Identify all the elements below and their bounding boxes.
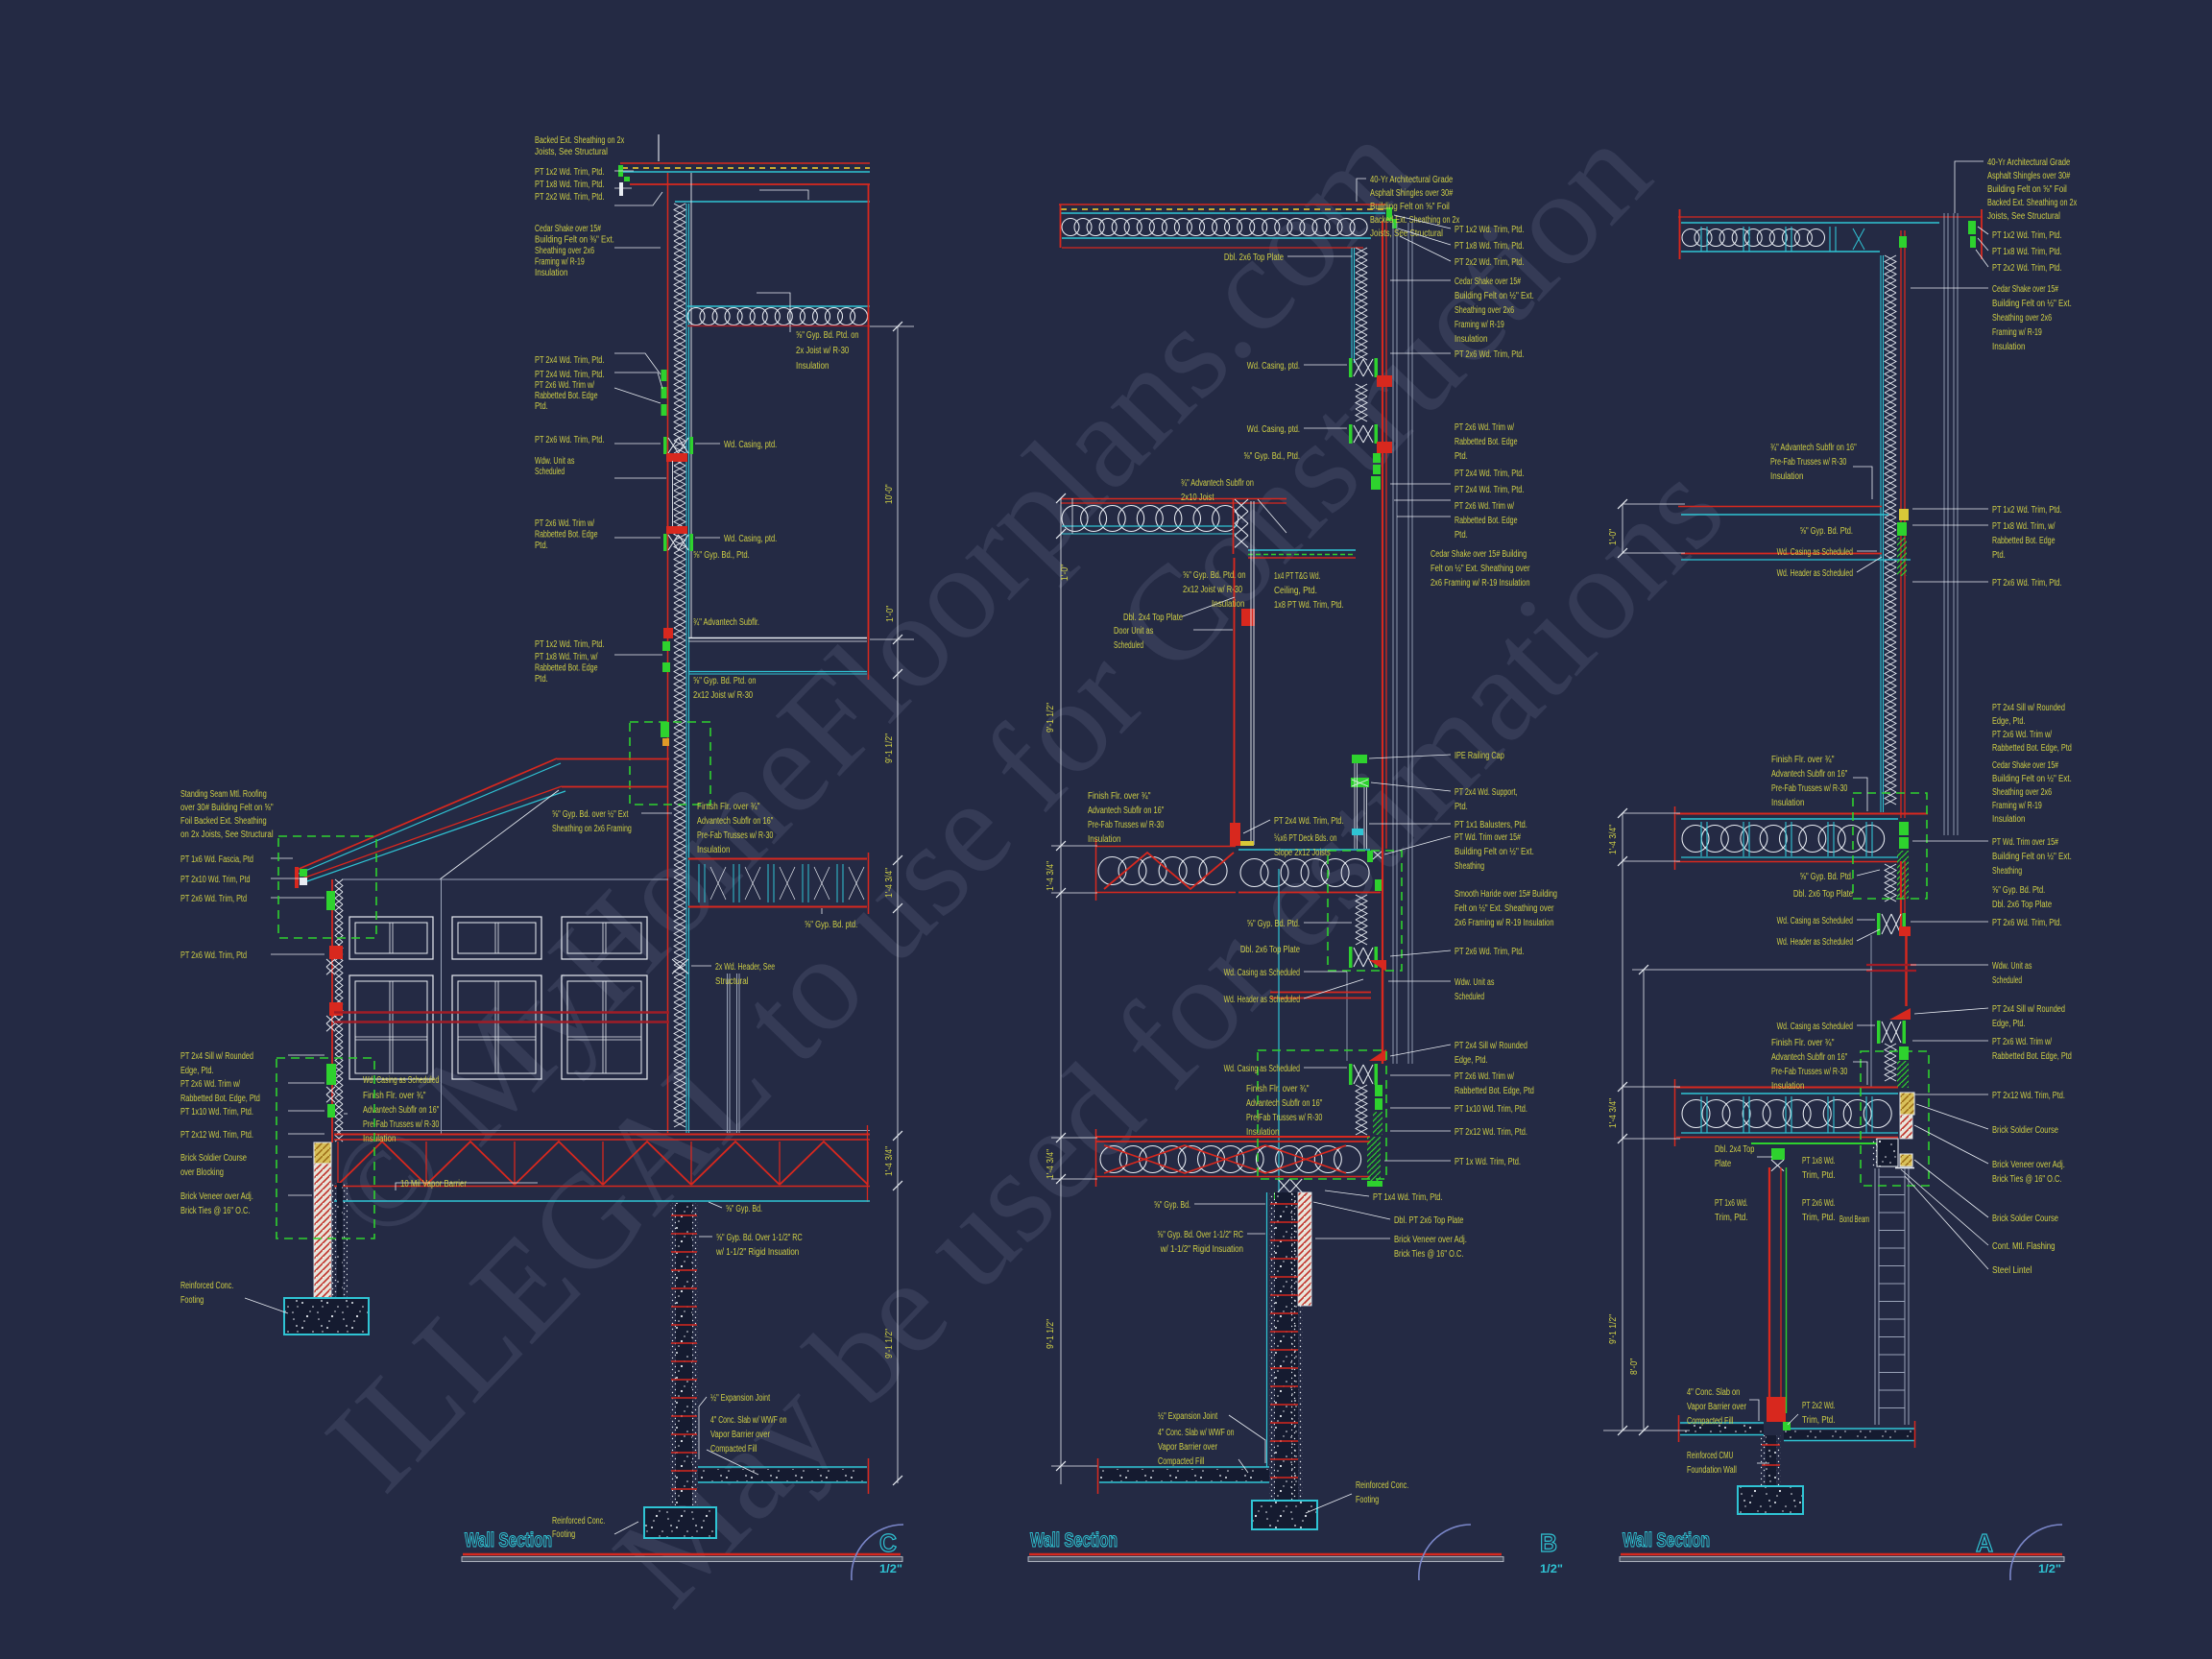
svg-text:Asphalt Shingles over 30#: Asphalt Shingles over 30# xyxy=(1370,188,1454,199)
svg-text:Advantech Subflr on 16": Advantech Subflr on 16" xyxy=(1771,1052,1848,1063)
svg-text:PT 1x2 Wd. Trim, Ptd.: PT 1x2 Wd. Trim, Ptd. xyxy=(535,639,605,650)
svg-text:Wd. Header as Scheduled: Wd. Header as Scheduled xyxy=(1777,937,1853,948)
svg-text:Brick Soldier Course: Brick Soldier Course xyxy=(1992,1125,2058,1136)
svg-text:PT 1x10 Wd. Trim, Ptd.: PT 1x10 Wd. Trim, Ptd. xyxy=(180,1107,253,1118)
svg-text:PT 2x6 Wd.: PT 2x6 Wd. xyxy=(1802,1198,1836,1209)
svg-text:Compacted Fill: Compacted Fill xyxy=(1687,1416,1733,1427)
svg-text:PT 1x1 Balusters, Ptd.: PT 1x1 Balusters, Ptd. xyxy=(1455,820,1527,830)
svg-text:1'-4 3/4": 1'-4 3/4" xyxy=(1046,861,1056,891)
svg-text:Sheathing over 2x6: Sheathing over 2x6 xyxy=(1455,305,1514,316)
svg-text:Bond Beam: Bond Beam xyxy=(1839,1214,1869,1225)
svg-text:2x6 Framing w/ R-19 Insulation: 2x6 Framing w/ R-19 Insulation xyxy=(1455,918,1554,928)
svg-text:PT 2x4 Wd. Trim, Ptd.: PT 2x4 Wd. Trim, Ptd. xyxy=(1455,469,1525,479)
svg-text:Felt on ½" Ext. Sheathing over: Felt on ½" Ext. Sheathing over xyxy=(1455,903,1554,914)
svg-text:10'-0": 10'-0" xyxy=(884,484,895,504)
svg-text:Framing w/ R-19: Framing w/ R-19 xyxy=(535,257,585,268)
svg-text:Wd. Casing as Scheduled: Wd. Casing as Scheduled xyxy=(1224,1064,1300,1074)
svg-text:Framing w/ R-19: Framing w/ R-19 xyxy=(1992,327,2042,338)
svg-text:Rabbetted Bot. Edge, Ptd: Rabbetted Bot. Edge, Ptd xyxy=(180,1094,260,1104)
svg-text:9'-1 1/2": 9'-1 1/2" xyxy=(1046,1319,1056,1349)
svg-text:1'-4 3/4": 1'-4 3/4" xyxy=(1046,1149,1056,1179)
svg-text:⅝" Gyp. Bd., Ptd.: ⅝" Gyp. Bd., Ptd. xyxy=(1243,451,1300,462)
svg-text:Sheathing over 2x6: Sheathing over 2x6 xyxy=(1992,313,2052,324)
svg-text:Vapor Barrier over: Vapor Barrier over xyxy=(710,1430,771,1440)
svg-text:w/ 1-1/2" Rigid Insuation: w/ 1-1/2" Rigid Insuation xyxy=(1160,1244,1243,1255)
svg-text:Foundation Wall: Foundation Wall xyxy=(1687,1465,1737,1476)
svg-text:Edge, Ptd.: Edge, Ptd. xyxy=(180,1066,214,1076)
svg-text:Brick Ties @ 16" O.C.: Brick Ties @ 16" O.C. xyxy=(1394,1249,1464,1260)
svg-text:Pre-Fab Trusses w/ R-30: Pre-Fab Trusses w/ R-30 xyxy=(1771,783,1848,794)
svg-text:Compacted Fill: Compacted Fill xyxy=(710,1444,757,1455)
svg-text:Rabbetted Bot. Edge: Rabbetted Bot. Edge xyxy=(535,530,598,541)
svg-text:Reinforced Conc.: Reinforced Conc. xyxy=(1356,1480,1408,1491)
svg-text:PT 2x6 Wd. Trim, Ptd.: PT 2x6 Wd. Trim, Ptd. xyxy=(1455,349,1525,360)
svg-text:Insulation: Insulation xyxy=(697,845,731,855)
svg-text:PT Wd. Trim over 15#: PT Wd. Trim over 15# xyxy=(1992,837,2058,848)
svg-text:PT 1x8 Wd.: PT 1x8 Wd. xyxy=(1802,1156,1836,1166)
svg-text:Wdw. Unit as: Wdw. Unit as xyxy=(1992,961,2032,972)
svg-text:Brick Ties @ 16" O.C.: Brick Ties @ 16" O.C. xyxy=(1992,1174,2062,1185)
svg-text:Wdw. Unit as: Wdw. Unit as xyxy=(535,456,574,467)
svg-text:Joists, See Structural: Joists, See Structural xyxy=(1987,211,2060,222)
svg-text:9'-1 1/2": 9'-1 1/2" xyxy=(884,1329,895,1358)
svg-text:Framing w/ R-19: Framing w/ R-19 xyxy=(1992,801,2042,811)
svg-text:Wd. Casing, ptd.: Wd. Casing, ptd. xyxy=(1247,361,1300,372)
svg-text:over Blocking: over Blocking xyxy=(180,1167,224,1178)
svg-text:Finish Flr. over ¾": Finish Flr. over ¾" xyxy=(363,1091,426,1101)
svg-text:Building Felt on ⅝" Foil: Building Felt on ⅝" Foil xyxy=(1370,202,1450,212)
svg-text:Scheduled: Scheduled xyxy=(1455,992,1484,1002)
svg-text:Wd. Casing as Scheduled: Wd. Casing as Scheduled xyxy=(1224,968,1300,978)
svg-text:PT 1x8 Wd. Trim, Ptd.: PT 1x8 Wd. Trim, Ptd. xyxy=(535,180,605,190)
svg-text:1'-0": 1'-0" xyxy=(1060,564,1070,581)
svg-text:PT 1x4 Wd. Trim, Ptd.: PT 1x4 Wd. Trim, Ptd. xyxy=(1373,1192,1443,1203)
svg-text:Standing Seam Mtl. Roofing: Standing Seam Mtl. Roofing xyxy=(180,789,267,800)
svg-text:PT 2x12 Wd. Trim, Ptd.: PT 2x12 Wd. Trim, Ptd. xyxy=(1455,1127,1527,1138)
svg-text:⅝" Gyp. Bd., Ptd.: ⅝" Gyp. Bd., Ptd. xyxy=(693,550,750,561)
svg-text:1'-4 3/4": 1'-4 3/4" xyxy=(884,1146,895,1176)
svg-text:2x Joist w/ R-30: 2x Joist w/ R-30 xyxy=(796,346,850,356)
svg-text:PT 2x6 Wd. Trim w/: PT 2x6 Wd. Trim w/ xyxy=(1455,1071,1514,1082)
svg-text:⅝" Gyp. Bd. Ptd. on: ⅝" Gyp. Bd. Ptd. on xyxy=(1183,570,1246,581)
svg-text:2x12 Joist w/ R-30: 2x12 Joist w/ R-30 xyxy=(1183,585,1242,595)
svg-text:Advantech Subflr on 16": Advantech Subflr on 16" xyxy=(1771,769,1848,780)
svg-text:Insulation: Insulation xyxy=(1771,798,1805,808)
svg-text:Wall Section: Wall Section xyxy=(1623,1529,1710,1551)
svg-text:Rabbetted Bot. Edge: Rabbetted Bot. Edge xyxy=(1455,516,1518,526)
svg-text:8'-0": 8'-0" xyxy=(1629,1358,1640,1375)
svg-text:PT 1x2 Wd. Trim, Ptd.: PT 1x2 Wd. Trim, Ptd. xyxy=(1992,230,2062,241)
svg-text:Wdw. Unit as: Wdw. Unit as xyxy=(1455,977,1494,988)
svg-text:PT 2x6 Wd. Trim, Ptd: PT 2x6 Wd. Trim, Ptd xyxy=(180,950,247,961)
svg-text:¾" Advantech Subflr on 16": ¾" Advantech Subflr on 16" xyxy=(1770,443,1857,453)
svg-text:Building Felt on ½" Ext.: Building Felt on ½" Ext. xyxy=(1992,852,2072,862)
svg-text:Cedar Shake over 15#: Cedar Shake over 15# xyxy=(1455,276,1521,287)
svg-text:2x12 Joist w/ R-30: 2x12 Joist w/ R-30 xyxy=(693,690,753,701)
svg-text:PT 1x6 Wd. Fascia, Ptd: PT 1x6 Wd. Fascia, Ptd xyxy=(180,854,253,865)
svg-text:Rabbetted Bot. Edge, Ptd: Rabbetted Bot. Edge, Ptd xyxy=(1992,743,2072,754)
svg-text:Cedar Shake over 15#: Cedar Shake over 15# xyxy=(1992,284,2058,295)
svg-text:Smooth Haride over 15# Buildin: Smooth Haride over 15# Building xyxy=(1455,889,1557,900)
svg-text:Rabbetted Bot. Edge, Ptd: Rabbetted Bot. Edge, Ptd xyxy=(1992,1051,2072,1062)
svg-text:PT 2x12 Wd. Trim, Ptd.: PT 2x12 Wd. Trim, Ptd. xyxy=(180,1130,253,1141)
svg-text:Wd. Casing, ptd.: Wd. Casing, ptd. xyxy=(1247,424,1300,435)
svg-text:Rabbetted Bot. Edge: Rabbetted Bot. Edge xyxy=(535,663,598,674)
svg-text:⅝" Gyp. Bd. Ptd.: ⅝" Gyp. Bd. Ptd. xyxy=(1800,526,1853,537)
svg-text:⅝" Gyp. Bd. Ptd.: ⅝" Gyp. Bd. Ptd. xyxy=(1800,872,1853,882)
svg-text:PT 1x2 Wd. Trim, Ptd.: PT 1x2 Wd. Trim, Ptd. xyxy=(535,167,605,178)
svg-text:Ptd.: Ptd. xyxy=(1992,550,2006,561)
svg-text:Advantech Subflr on 16": Advantech Subflr on 16" xyxy=(1088,805,1165,816)
svg-text:Wd. Casing as Scheduled: Wd. Casing as Scheduled xyxy=(1777,1022,1853,1032)
svg-text:Sheathing: Sheathing xyxy=(1992,866,2022,877)
svg-text:Framing w/ R-19: Framing w/ R-19 xyxy=(1455,320,1504,330)
svg-text:9'-1 1/2": 9'-1 1/2" xyxy=(1608,1314,1619,1344)
svg-text:Building Felt on ⅜" Ext.: Building Felt on ⅜" Ext. xyxy=(535,235,614,246)
svg-text:Vapor Barrier over: Vapor Barrier over xyxy=(1687,1402,1747,1412)
svg-text:Sheathing over 2x6: Sheathing over 2x6 xyxy=(535,246,594,256)
svg-text:⅝" Gyp. Bd.: ⅝" Gyp. Bd. xyxy=(1154,1200,1190,1211)
svg-text:Joists, See Structural: Joists, See Structural xyxy=(1370,228,1443,239)
svg-text:Trim, Ptd.: Trim, Ptd. xyxy=(1715,1213,1748,1223)
svg-text:⅝" Gyp. Bd. Over 1-1/2" RC: ⅝" Gyp. Bd. Over 1-1/2" RC xyxy=(716,1233,803,1243)
svg-text:PT 2x4 Wd. Support,: PT 2x4 Wd. Support, xyxy=(1455,787,1518,798)
svg-text:Finish Flr. over ¾": Finish Flr. over ¾" xyxy=(1088,791,1151,802)
svg-text:⅝" Gyp. Bd. Ptd. on: ⅝" Gyp. Bd. Ptd. on xyxy=(796,330,859,341)
svg-text:Insulation: Insulation xyxy=(363,1134,397,1144)
svg-text:Scheduled: Scheduled xyxy=(535,467,565,477)
svg-text:Pre|Fab Trusses w/ R-30: Pre|Fab Trusses w/ R-30 xyxy=(1246,1113,1323,1123)
svg-text:PT 2x4 Wd. Trim, Ptd.: PT 2x4 Wd. Trim, Ptd. xyxy=(1274,816,1344,827)
svg-text:PT 2x2 Wd.: PT 2x2 Wd. xyxy=(1802,1401,1836,1411)
svg-text:PT 1x8 Wd. Trim, w/: PT 1x8 Wd. Trim, w/ xyxy=(1992,521,2056,532)
svg-text:4" Conc. Slab w/ WWF on: 4" Conc. Slab w/ WWF on xyxy=(1158,1428,1234,1438)
svg-text:PT 2x4 Wd. Trim, Ptd.: PT 2x4 Wd. Trim, Ptd. xyxy=(535,370,605,380)
svg-text:Building Felt on ½" Ext.: Building Felt on ½" Ext. xyxy=(1992,299,2072,309)
svg-text:⅝" Gyp. Bd. over ½" Ext: ⅝" Gyp. Bd. over ½" Ext xyxy=(552,809,629,820)
svg-text:PT 2x2 Wd. Trim, Ptd.: PT 2x2 Wd. Trim, Ptd. xyxy=(1992,263,2062,274)
svg-text:on 2x Joists, See Structural: on 2x Joists, See Structural xyxy=(180,829,274,840)
svg-text:Advantech Subflr on 16": Advantech Subflr on 16" xyxy=(697,816,774,827)
svg-text:Insulation: Insulation xyxy=(796,361,829,372)
svg-text:PT 1x8 Wd. Trim, w/: PT 1x8 Wd. Trim, w/ xyxy=(535,652,598,662)
svg-text:1/2": 1/2" xyxy=(1540,1562,1563,1575)
svg-text:Wd. Casing, ptd.: Wd. Casing, ptd. xyxy=(724,534,777,544)
svg-text:Dbl. PT 2x6 Top Plate: Dbl. PT 2x6 Top Plate xyxy=(1394,1215,1464,1226)
svg-text:Cedar Shake over 15#: Cedar Shake over 15# xyxy=(1992,760,2058,771)
svg-text:Rabbetted Bot. Edge: Rabbetted Bot. Edge xyxy=(1455,437,1518,447)
svg-text:4" Conc. Slab on: 4" Conc. Slab on xyxy=(1687,1387,1740,1398)
svg-text:Pre-Fab Trusses w/ R-30: Pre-Fab Trusses w/ R-30 xyxy=(697,830,774,841)
svg-text:Cedar Shake over 15#: Cedar Shake over 15# xyxy=(535,224,601,234)
svg-text:Finish Flr. over ¾": Finish Flr. over ¾" xyxy=(1771,1038,1835,1048)
svg-text:Sheathing: Sheathing xyxy=(1455,861,1484,872)
svg-text:Wd. Header as Scheduled: Wd. Header as Scheduled xyxy=(1224,995,1300,1005)
svg-text:Trim, Ptd.: Trim, Ptd. xyxy=(1802,1213,1836,1223)
svg-text:PT 2x6 Wd. Trim w/: PT 2x6 Wd. Trim w/ xyxy=(1992,730,2052,740)
svg-text:Dbl. 2x4 Top Plate: Dbl. 2x4 Top Plate xyxy=(1123,613,1183,623)
svg-text:Sheathing over 2x6: Sheathing over 2x6 xyxy=(1992,787,2052,798)
svg-text:PT 2x4 Sill w/ Rounded: PT 2x4 Sill w/ Rounded xyxy=(1455,1041,1527,1051)
svg-text:Dbl. 2x4 Top: Dbl. 2x4 Top xyxy=(1715,1144,1755,1155)
svg-text:PT 2x2 Wd. Trim, Ptd.: PT 2x2 Wd. Trim, Ptd. xyxy=(1455,257,1525,268)
svg-text:PT Wd. Trim over 15#: PT Wd. Trim over 15# xyxy=(1455,832,1521,843)
svg-text:Trim, Ptd.: Trim, Ptd. xyxy=(1802,1415,1836,1426)
svg-text:PT 2x6 Wd. Trim w/: PT 2x6 Wd. Trim w/ xyxy=(180,1079,240,1090)
svg-text:Rabbetted Bot. Edge, Ptd: Rabbetted Bot. Edge, Ptd xyxy=(1455,1086,1534,1096)
svg-text:1/2": 1/2" xyxy=(2038,1562,2061,1575)
svg-text:Insulation: Insulation xyxy=(1771,1081,1805,1092)
svg-text:Building Felt on ½" Ext.: Building Felt on ½" Ext. xyxy=(1455,291,1534,301)
svg-text:PT 2x2 Wd. Trim, Ptd.: PT 2x2 Wd. Trim, Ptd. xyxy=(535,192,605,203)
svg-text:Footing: Footing xyxy=(552,1529,575,1540)
svg-text:⅝" Gyp. Bd. ptd.: ⅝" Gyp. Bd. ptd. xyxy=(805,920,857,930)
svg-text:40-Yr Architectural Grade: 40-Yr Architectural Grade xyxy=(1987,157,2071,168)
svg-text:Insulation: Insulation xyxy=(1212,599,1245,610)
svg-text:Insulation: Insulation xyxy=(1992,814,2026,825)
svg-text:Sheathing on 2x6 Framing: Sheathing on 2x6 Framing xyxy=(552,824,632,834)
svg-text:PT 2x6 Wd. Trim, Ptd.: PT 2x6 Wd. Trim, Ptd. xyxy=(1992,578,2062,589)
svg-text:Edge, Ptd.: Edge, Ptd. xyxy=(1992,716,2026,727)
svg-text:Insulation: Insulation xyxy=(535,268,568,278)
svg-text:Structural: Structural xyxy=(715,976,749,987)
svg-text:Building Felt on ½" Ext.: Building Felt on ½" Ext. xyxy=(1992,774,2072,784)
svg-text:PT 1x6 Wd.: PT 1x6 Wd. xyxy=(1715,1198,1748,1209)
svg-text:Cedar Shake over 15# Building: Cedar Shake over 15# Building xyxy=(1431,549,1527,560)
svg-text:Rabbetted Bot. Edge: Rabbetted Bot. Edge xyxy=(1992,536,2056,546)
svg-text:A: A xyxy=(1976,1528,1993,1557)
svg-text:Scheduled: Scheduled xyxy=(1114,640,1143,651)
svg-text:⅝" Gyp. Bd. Over 1-1/2" RC: ⅝" Gyp. Bd. Over 1-1/2" RC xyxy=(1157,1230,1243,1240)
svg-text:Brick Veneer over Adj.: Brick Veneer over Adj. xyxy=(1992,1160,2065,1170)
svg-text:Brick Veneer over Adj.: Brick Veneer over Adj. xyxy=(1394,1235,1467,1245)
svg-text:1x4 PT T&G Wd.: 1x4 PT T&G Wd. xyxy=(1274,571,1320,582)
svg-text:PT 1x8 Wd. Trim, Ptd.: PT 1x8 Wd. Trim, Ptd. xyxy=(1455,241,1525,252)
svg-text:PT 2x6 Wd. Trim w/: PT 2x6 Wd. Trim w/ xyxy=(1455,422,1514,433)
svg-text:Dbl. 2x6 Top Plate: Dbl. 2x6 Top Plate xyxy=(1240,945,1300,955)
svg-text:Plate: Plate xyxy=(1715,1159,1732,1169)
svg-text:Wd. Header as Scheduled: Wd. Header as Scheduled xyxy=(1777,568,1853,579)
svg-text:Edge, Ptd.: Edge, Ptd. xyxy=(1455,1055,1488,1066)
svg-text:⅚x6 PT Deck Bds. on: ⅚x6 PT Deck Bds. on xyxy=(1274,833,1337,844)
svg-text:½" Expansion Joint: ½" Expansion Joint xyxy=(1158,1411,1217,1422)
svg-text:Insulation: Insulation xyxy=(1246,1127,1280,1138)
svg-text:PT 2x6 Wd. Trim w/: PT 2x6 Wd. Trim w/ xyxy=(1992,1037,2052,1047)
svg-text:Ptd.: Ptd. xyxy=(1455,451,1468,462)
svg-text:Ptd.: Ptd. xyxy=(535,674,548,685)
svg-text:Steel Lintel: Steel Lintel xyxy=(1992,1265,2032,1276)
svg-text:PT 2x6 Wd. Trim, Ptd.: PT 2x6 Wd. Trim, Ptd. xyxy=(1455,947,1525,957)
svg-text:⅝" Gyp. Bd. Ptd.: ⅝" Gyp. Bd. Ptd. xyxy=(1992,885,2045,896)
svg-text:over 30# Building Felt on ⅝": over 30# Building Felt on ⅝" xyxy=(180,803,274,813)
svg-text:Asphalt Shingles over 30#: Asphalt Shingles over 30# xyxy=(1987,171,2071,181)
svg-text:Finish Flr. over ¾": Finish Flr. over ¾" xyxy=(1771,755,1835,765)
svg-text:Pre-Fab Trusses w/ R-30: Pre-Fab Trusses w/ R-30 xyxy=(1771,1067,1848,1077)
svg-text:9'-1 1/2": 9'-1 1/2" xyxy=(884,733,895,763)
svg-text:Building Felt on ½" Ext.: Building Felt on ½" Ext. xyxy=(1455,847,1534,857)
svg-text:PT 2x6 Wd. Trim w/: PT 2x6 Wd. Trim w/ xyxy=(1455,501,1514,512)
svg-text:Insulation: Insulation xyxy=(1088,834,1121,845)
svg-text:¾" Advantech Subflr.: ¾" Advantech Subflr. xyxy=(693,617,759,628)
svg-text:Brick Ties @ 16" O.C.: Brick Ties @ 16" O.C. xyxy=(180,1206,251,1216)
svg-text:2x6 Framing w/ R-19 Insulation: 2x6 Framing w/ R-19 Insulation xyxy=(1431,578,1530,589)
svg-text:B: B xyxy=(1540,1528,1557,1557)
svg-text:Vapor Barrier over: Vapor Barrier over xyxy=(1158,1442,1218,1453)
svg-text:Advantech Subflr on 16": Advantech Subflr on 16" xyxy=(1246,1098,1323,1109)
svg-text:PT 2x10 Wd. Trim, Ptd: PT 2x10 Wd. Trim, Ptd xyxy=(180,875,251,885)
svg-text:Brick Soldier Course: Brick Soldier Course xyxy=(180,1153,247,1164)
svg-text:Brick Veneer over Adj.: Brick Veneer over Adj. xyxy=(180,1191,253,1202)
svg-text:4" Conc. Slab w/ WWF on: 4" Conc. Slab w/ WWF on xyxy=(710,1415,786,1426)
svg-text:Felt on ½" Ext. Sheathing over: Felt on ½" Ext. Sheathing over xyxy=(1431,564,1530,574)
svg-text:Dbl. 2x6 Top Plate: Dbl. 2x6 Top Plate xyxy=(1224,252,1284,263)
svg-text:PT 2x4 Sill w/ Rounded: PT 2x4 Sill w/ Rounded xyxy=(180,1051,253,1062)
svg-text:PT 2x4 Wd. Trim, Ptd.: PT 2x4 Wd. Trim, Ptd. xyxy=(535,355,605,366)
svg-text:Trim, Ptd.: Trim, Ptd. xyxy=(1802,1170,1836,1181)
svg-text:Rabbetted Bot. Edge: Rabbetted Bot. Edge xyxy=(535,391,598,401)
svg-text:PT 2x6 Wd. Trim, Ptd.: PT 2x6 Wd. Trim, Ptd. xyxy=(535,435,605,445)
svg-text:Ptd.: Ptd. xyxy=(1455,530,1468,541)
svg-text:PT 1x2 Wd. Trim, Ptd.: PT 1x2 Wd. Trim, Ptd. xyxy=(1992,505,2062,516)
svg-text:Slope 2x12 Joists: Slope 2x12 Joists xyxy=(1274,848,1331,858)
svg-text:Reinforced CMU: Reinforced CMU xyxy=(1687,1451,1733,1461)
svg-text:Building Felt on ⅝" Foil: Building Felt on ⅝" Foil xyxy=(1987,184,2067,195)
svg-text:Wd. Casing, ptd.: Wd. Casing, ptd. xyxy=(724,440,777,450)
svg-text:C: C xyxy=(879,1528,897,1557)
svg-text:1'-0": 1'-0" xyxy=(885,605,896,622)
svg-text:Edge, Ptd.: Edge, Ptd. xyxy=(1992,1019,2026,1029)
svg-text:Reinforced Conc.: Reinforced Conc. xyxy=(180,1281,233,1291)
svg-text:PT 1x Wd. Trim, Ptd.: PT 1x Wd. Trim, Ptd. xyxy=(1455,1157,1521,1167)
svg-text:10 Mil Vapor Barrier: 10 Mil Vapor Barrier xyxy=(400,1179,468,1190)
svg-text:Door Unit as: Door Unit as xyxy=(1114,626,1153,637)
svg-text:PT 2x6 Wd. Trim, Ptd.: PT 2x6 Wd. Trim, Ptd. xyxy=(1992,918,2062,928)
svg-text:Wd. Casing as Scheduled: Wd. Casing as Scheduled xyxy=(1777,916,1853,926)
svg-text:⅝" Gyp. Bd. Ptd. on: ⅝" Gyp. Bd. Ptd. on xyxy=(693,676,757,686)
svg-text:IPE Railing Cap: IPE Railing Cap xyxy=(1455,751,1504,761)
svg-text:Foil Backed Ext. Sheathing: Foil Backed Ext. Sheathing xyxy=(180,816,267,827)
svg-text:PT 2x6 Wd. Trim w/: PT 2x6 Wd. Trim w/ xyxy=(535,518,594,529)
svg-text:w/ 1-1/2" Rigid Insuation: w/ 1-1/2" Rigid Insuation xyxy=(715,1247,799,1258)
svg-text:Cont. Mtl. Flashing: Cont. Mtl. Flashing xyxy=(1992,1241,2056,1252)
svg-text:1'-4 3/4": 1'-4 3/4" xyxy=(1608,1098,1619,1128)
svg-text:Brick Soldier Course: Brick Soldier Course xyxy=(1992,1214,2058,1224)
svg-text:½" Expansion Joint: ½" Expansion Joint xyxy=(710,1393,770,1404)
svg-text:Backed Ext. Sheathing on 2x: Backed Ext. Sheathing on 2x xyxy=(1987,198,2077,208)
svg-text:PT 1x10 Wd. Trim, Ptd.: PT 1x10 Wd. Trim, Ptd. xyxy=(1455,1104,1527,1115)
svg-text:⅝" Gyp. Bd. Ptd.: ⅝" Gyp. Bd. Ptd. xyxy=(1247,919,1300,929)
svg-text:1'-0": 1'-0" xyxy=(1608,528,1619,545)
svg-text:PT 2x4 Sill w/ Rounded: PT 2x4 Sill w/ Rounded xyxy=(1992,1004,2065,1015)
svg-text:Pre-Fab Trusses w/ R-30: Pre-Fab Trusses w/ R-30 xyxy=(1088,820,1165,830)
svg-text:Dbl. 2x6 Top Plate: Dbl. 2x6 Top Plate xyxy=(1992,900,2052,910)
svg-text:Footing: Footing xyxy=(180,1295,204,1306)
svg-text:Insulation: Insulation xyxy=(1455,334,1488,345)
svg-text:PT 2x4 Wd. Trim, Ptd.: PT 2x4 Wd. Trim, Ptd. xyxy=(1455,485,1525,495)
svg-text:Ceiling, Ptd.: Ceiling, Ptd. xyxy=(1274,586,1317,596)
svg-text:Wall Section: Wall Section xyxy=(1030,1529,1118,1551)
svg-text:¾" Advantech Subflr on: ¾" Advantech Subflr on xyxy=(1181,478,1254,489)
svg-text:9'-1 1/2": 9'-1 1/2" xyxy=(1046,703,1056,733)
svg-text:PT 2x12 Wd. Trim, Ptd.: PT 2x12 Wd. Trim, Ptd. xyxy=(1992,1091,2065,1101)
svg-text:Dbl. 2x6 Top Plate: Dbl. 2x6 Top Plate xyxy=(1793,889,1853,900)
svg-text:40-Yr Architectural Grade: 40-Yr Architectural Grade xyxy=(1370,175,1454,185)
svg-text:Pre-Fab Trusses w/ R-30: Pre-Fab Trusses w/ R-30 xyxy=(1770,457,1847,468)
svg-text:PT 1x2 Wd. Trim, Ptd.: PT 1x2 Wd. Trim, Ptd. xyxy=(1455,225,1525,235)
svg-text:2x Wd. Header, See: 2x Wd. Header, See xyxy=(715,962,775,973)
svg-text:PT 2x6 Wd. Trim w/: PT 2x6 Wd. Trim w/ xyxy=(535,380,594,391)
svg-text:Footing: Footing xyxy=(1356,1495,1379,1505)
svg-text:PT 2x6 Wd. Trim, Ptd: PT 2x6 Wd. Trim, Ptd xyxy=(180,894,247,904)
svg-text:Finish Flr. over ¾": Finish Flr. over ¾" xyxy=(697,802,760,812)
svg-text:Insulation: Insulation xyxy=(1992,342,2026,352)
svg-text:Insulation: Insulation xyxy=(1770,471,1804,482)
svg-text:Wd. Casing as Scheduled: Wd. Casing as Scheduled xyxy=(1777,547,1853,558)
svg-text:Compacted Fill: Compacted Fill xyxy=(1158,1456,1204,1467)
svg-text:2x10 Joist: 2x10 Joist xyxy=(1181,493,1214,503)
svg-text:1'-4 3/4": 1'-4 3/4" xyxy=(1608,825,1619,854)
svg-text:Ptd.: Ptd. xyxy=(535,541,548,551)
svg-text:PT 2x4 Sill w/ Rounded: PT 2x4 Sill w/ Rounded xyxy=(1992,703,2065,713)
svg-text:Joists, See Structural: Joists, See Structural xyxy=(535,147,608,157)
svg-text:Finish Flr. over ¾": Finish Flr. over ¾" xyxy=(1246,1084,1310,1094)
svg-text:PT 1x8 Wd. Trim, Ptd.: PT 1x8 Wd. Trim, Ptd. xyxy=(1992,247,2062,257)
svg-text:Scheduled: Scheduled xyxy=(1992,975,2022,986)
svg-text:Ptd.: Ptd. xyxy=(1455,802,1468,812)
svg-text:1/2": 1/2" xyxy=(879,1562,902,1575)
svg-text:1x8 PT Wd. Trim, Ptd.: 1x8 PT Wd. Trim, Ptd. xyxy=(1274,600,1344,611)
svg-text:Wall Section: Wall Section xyxy=(465,1529,552,1551)
svg-text:1'-4 3/4": 1'-4 3/4" xyxy=(884,868,895,898)
svg-text:⅝" Gyp. Bd.: ⅝" Gyp. Bd. xyxy=(726,1204,762,1214)
svg-text:Backed Ext. Sheathing on 2x: Backed Ext. Sheathing on 2x xyxy=(535,135,624,146)
svg-text:Ptd.: Ptd. xyxy=(535,401,548,412)
svg-text:Reinforced Conc.: Reinforced Conc. xyxy=(552,1516,605,1527)
